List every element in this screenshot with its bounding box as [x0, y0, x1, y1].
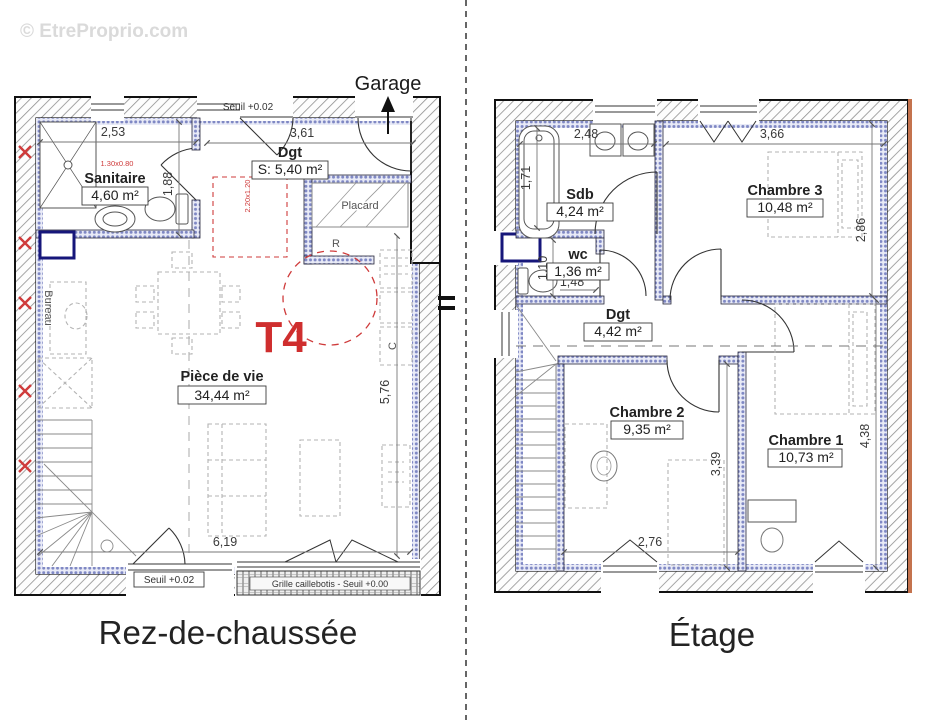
room-cuisine: C	[387, 342, 399, 350]
seuil-baie-label: Seuil +0.02	[144, 575, 195, 586]
ground-floor-title: Rez-de-chaussée	[99, 614, 358, 651]
watermark: © EtreProprio.com	[20, 21, 188, 42]
garage-party-wall	[411, 97, 440, 263]
floor-plan-image: 1.30x0.80 2.20x1.20 T4 2,53 3,61 1,88 5,…	[0, 0, 936, 720]
ground-floor-plan: 1.30x0.80 2.20x1.20 T4 2,53 3,61 1,88 5,…	[15, 73, 455, 651]
dim-sejour-depth: 5,76	[378, 380, 392, 404]
dim-chambre3-width: 3,66	[760, 127, 784, 141]
room-chambre3: Chambre 3	[748, 183, 823, 199]
floor-plan-drawing: 1.30x0.80 2.20x1.20 T4 2,53 3,61 1,88 5,…	[0, 0, 936, 720]
room-chambre2: Chambre 2	[610, 405, 685, 421]
garage-label: Garage	[355, 73, 422, 95]
room-placard: Placard	[341, 200, 378, 212]
room-chambre1: Chambre 1	[769, 433, 844, 449]
dim-sanitaire-width: 2,53	[101, 125, 125, 139]
room-wc-area: 1,36 m²	[554, 263, 602, 279]
room-sdb-area: 4,24 m²	[556, 203, 604, 219]
dim-chambre1-depth: 4,38	[858, 424, 872, 448]
upper-floor-plan: 2,48 3,66 1,71 2,86 1,10 1,48 3,39 4,38 …	[493, 98, 912, 653]
room-dgt-area: 4,42 m²	[594, 323, 642, 339]
upper-floor-title: Étage	[669, 616, 755, 653]
room-sdb: Sdb	[566, 187, 594, 203]
room-dgt-area: S: 5,40 m²	[258, 161, 323, 177]
bay-size-label: 2.20x1.20	[243, 180, 252, 213]
grille-label: Grille caillebotis - Seuil +0.00	[272, 579, 388, 589]
room-sanitaire: Sanitaire	[84, 171, 145, 187]
dim-sejour-width: 6,19	[213, 535, 237, 549]
room-chambre2-area: 9,35 m²	[623, 421, 671, 437]
dim-chambre3-depth: 2,86	[854, 218, 868, 242]
dim-entree-width: 3,61	[290, 126, 314, 140]
toilet	[518, 268, 528, 294]
dim-baignoire: 1,71	[519, 166, 533, 190]
dim-sanitaire-depth: 1,88	[161, 172, 175, 196]
dim-chambre2-depth: 3,39	[709, 452, 723, 476]
room-piece-de-vie-area: 34,44 m²	[194, 387, 250, 403]
type-label: T4	[255, 313, 307, 362]
exterior-orange-line	[908, 99, 912, 593]
dim-sdb-width: 2,48	[574, 127, 598, 141]
shower-size-label: 1.30x0.80	[101, 159, 134, 168]
room-reserve: R	[332, 238, 340, 250]
window-reveal	[40, 232, 74, 258]
room-sanitaire-area: 4,60 m²	[91, 187, 139, 203]
room-wc: wc	[567, 247, 587, 263]
room-dgt: Dgt	[606, 307, 630, 323]
room-chambre1-area: 10,73 m²	[778, 449, 834, 465]
dim-chambre2-width: 2,76	[638, 535, 662, 549]
room-dgt: Dgt	[278, 145, 302, 161]
room-piece-de-vie: Pièce de vie	[180, 369, 263, 385]
toilet	[176, 194, 188, 224]
room-bureau: Bureau	[42, 290, 54, 325]
seuil-entree-label: Seuil +0.02	[223, 102, 274, 113]
room-chambre3-area: 10,48 m²	[757, 199, 813, 215]
